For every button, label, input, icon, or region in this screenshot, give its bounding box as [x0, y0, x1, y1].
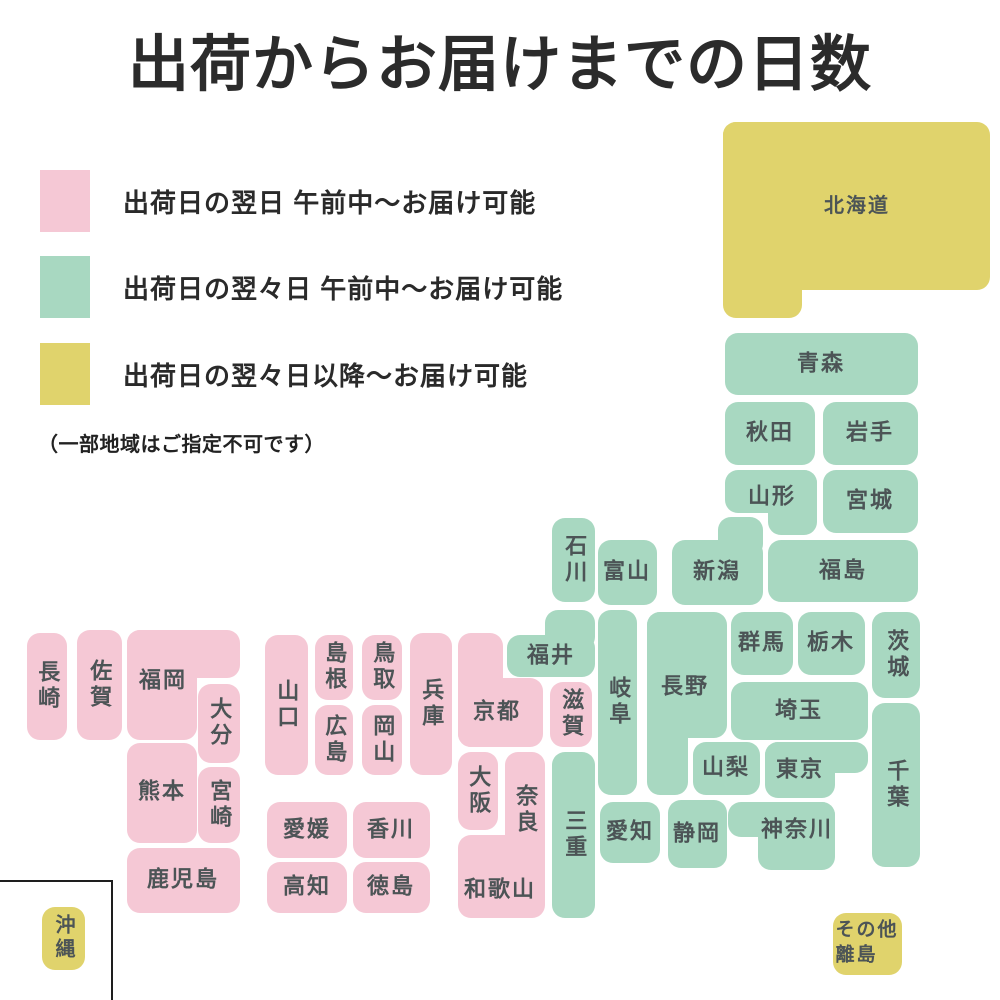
prefecture-label-kanagawa: 神奈川: [761, 816, 833, 845]
prefecture-label-tochigi: 栃木: [807, 629, 855, 658]
prefecture-label-fukuoka: 福岡: [139, 667, 187, 696]
prefecture-label-akita: 秋田: [746, 419, 794, 448]
prefecture-label-tokyo: 東京: [776, 756, 824, 785]
prefecture-label-toyama: 富山: [603, 558, 651, 587]
prefecture-label-ehime: 愛媛: [283, 816, 331, 845]
prefecture-label-yamaguchi: 山口: [272, 679, 301, 731]
prefecture-label-nagano: 長野: [661, 673, 709, 702]
prefecture-label-tokushima: 徳島: [367, 873, 415, 902]
prefecture-hokkaido-part1: [723, 122, 802, 318]
prefecture-label-shimane: 島根: [320, 641, 349, 693]
prefecture-label-ishikawa: 石川: [560, 534, 589, 586]
prefecture-label-iwate: 岩手: [846, 419, 894, 448]
prefecture-label-gifu: 岐阜: [604, 676, 633, 728]
prefecture-label-saga: 佐賀: [85, 659, 114, 711]
prefecture-label-hiroshima: 広島: [320, 714, 349, 766]
prefecture-label-osaka: 大阪: [464, 765, 493, 817]
prefecture-label-gunma: 群馬: [738, 629, 786, 658]
prefecture-nagano-part1: [647, 612, 688, 795]
prefecture-label-kochi: 高知: [283, 873, 331, 902]
prefecture-label-oita: 大分: [205, 697, 234, 749]
prefecture-label-yamagata: 山形: [748, 483, 796, 512]
prefecture-label-okinawa: 沖縄: [50, 914, 76, 962]
prefecture-label-shizuoka: 静岡: [673, 820, 721, 849]
japan-map: 北海道青森秋田岩手山形宮城福島新潟富山石川福井長野岐阜群馬栃木茨城埼玉山梨東京千…: [0, 0, 1000, 1000]
prefecture-label-nara: 奈良: [511, 784, 540, 836]
prefecture-label-kumamoto: 熊本: [138, 778, 186, 807]
prefecture-label-wakayama: 和歌山: [464, 876, 536, 905]
prefecture-label-kagoshima: 鹿児島: [147, 866, 219, 895]
prefecture-niigata-part1: [718, 517, 763, 557]
prefecture-label-okayama: 岡山: [368, 714, 397, 766]
prefecture-label-aichi: 愛知: [606, 818, 654, 847]
prefecture-label-kagawa: 香川: [367, 816, 415, 845]
prefecture-label-miyagi: 宮城: [846, 487, 894, 516]
prefecture-label-ibaraki: 茨城: [882, 629, 911, 681]
prefecture-label-shiga: 滋賀: [557, 688, 586, 740]
prefecture-label-other-islands: その他離島: [835, 918, 898, 967]
prefecture-label-fukui: 福井: [527, 642, 575, 671]
prefecture-label-mie: 三重: [560, 809, 589, 861]
prefecture-label-saitama: 埼玉: [775, 697, 823, 726]
prefecture-label-kyoto: 京都: [473, 698, 521, 727]
shipping-days-infographic: 出荷からお届けまでの日数 出荷日の翌日 午前中〜お届け可能出荷日の翌々日 午前中…: [0, 0, 1000, 1000]
prefecture-label-tottori: 鳥取: [368, 641, 397, 693]
prefecture-label-chiba: 千葉: [882, 759, 911, 811]
prefecture-label-hokkaido: 北海道: [824, 193, 890, 219]
prefecture-label-nagasaki: 長崎: [33, 660, 62, 712]
prefecture-label-yamanashi: 山梨: [702, 754, 750, 783]
prefecture-label-miyazaki: 宮崎: [205, 779, 234, 831]
prefecture-label-aomori: 青森: [797, 350, 845, 379]
prefecture-label-niigata: 新潟: [693, 558, 741, 587]
prefecture-label-fukushima: 福島: [819, 557, 867, 586]
prefecture-label-hyogo: 兵庫: [417, 678, 446, 730]
